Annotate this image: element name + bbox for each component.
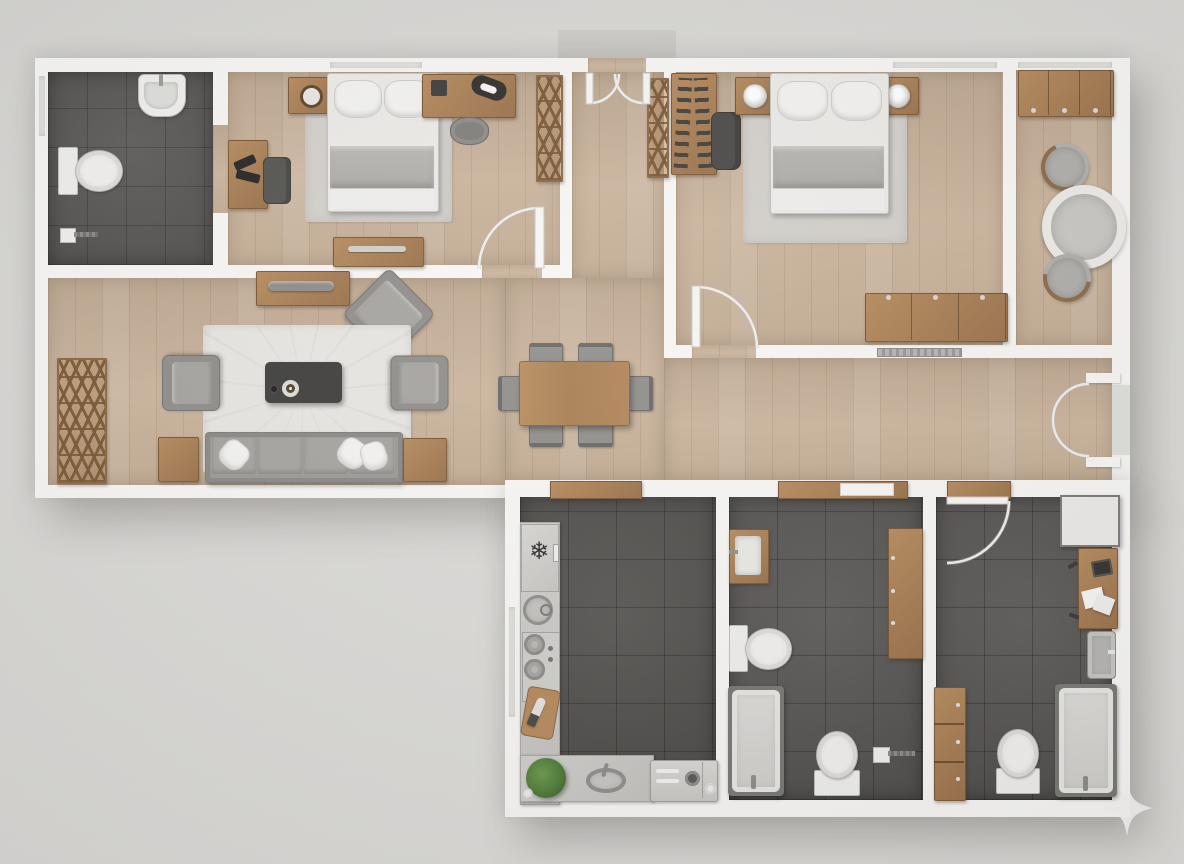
bed-footboard xyxy=(330,188,434,209)
dining-table xyxy=(519,361,630,426)
plant-bowl-kitchen xyxy=(522,788,533,799)
threshold-utility xyxy=(947,481,1011,499)
sideboard-knob1 xyxy=(1031,108,1036,113)
armchair-left-living xyxy=(162,355,220,411)
cooktop-knob1 xyxy=(548,646,553,651)
toilet-brush-handle-bathroom2 xyxy=(888,751,915,756)
bed-bedroom2 xyxy=(770,73,889,214)
vanity-basin-bathroom2 xyxy=(735,536,761,575)
cooktop-knob2 xyxy=(548,657,553,662)
sideboard-knob2 xyxy=(1062,108,1067,113)
laptop-utility xyxy=(1091,558,1113,577)
zigzag-shelf-living xyxy=(57,358,107,484)
oven-vent1 xyxy=(656,769,679,773)
dresser-knob1-bedroom2 xyxy=(886,295,891,300)
balcony-door-jamb-top xyxy=(1086,373,1120,383)
bathtub-bathroom2 xyxy=(728,686,784,796)
drawer-knob3-utility xyxy=(956,777,960,781)
drawer-knob2-utility xyxy=(956,740,960,744)
plate-small-living xyxy=(269,384,279,394)
sofa-living xyxy=(205,432,403,483)
coffee-table-living xyxy=(265,362,342,403)
fridge-snowflake-icon: ❄ xyxy=(526,538,552,564)
bed-footboard xyxy=(773,188,884,210)
soundbar-living xyxy=(268,281,334,291)
radiator-corridor xyxy=(877,348,962,357)
oven-small-dial xyxy=(705,783,716,794)
dresser-handle-bedroom1 xyxy=(348,246,406,252)
dresser-bedroom1 xyxy=(333,237,424,267)
doorway-bathroom1 xyxy=(213,125,228,213)
sideboard-knob3 xyxy=(1093,108,1098,113)
corridor-floor xyxy=(664,358,1112,480)
sink-basin-bathroom1 xyxy=(144,82,178,109)
sink-tap-utility xyxy=(1108,650,1115,654)
plate-large-living xyxy=(282,380,299,397)
oven-vent2 xyxy=(656,779,679,783)
cabinet-knob1-bathroom2 xyxy=(891,556,895,560)
lamp-left-bedroom2 xyxy=(743,84,767,108)
toilet2-bowl-bathroom2 xyxy=(816,731,858,779)
dresser-seams-bedroom2 xyxy=(865,293,1006,340)
threshold-kitchen xyxy=(550,481,642,499)
window-bathroom1 xyxy=(37,76,47,136)
cup-bedroom1 xyxy=(300,85,323,108)
oven-knob xyxy=(685,771,700,786)
cabinet-knob3-bathroom2 xyxy=(891,621,895,625)
doorway-bedroom1 xyxy=(482,265,542,278)
window-sitting-nook xyxy=(1018,60,1112,70)
toilet-brush-handle-bathroom1 xyxy=(74,232,98,237)
laptop-bedroom1 xyxy=(431,80,447,96)
window-bedroom2 xyxy=(893,60,997,70)
bathtub-faucet-bathroom2 xyxy=(751,775,756,789)
desk-chair-bedroom1 xyxy=(263,157,291,204)
stool-bedroom1 xyxy=(450,117,489,145)
oven-divider xyxy=(702,762,703,798)
cabinet-knob2-bathroom2 xyxy=(891,589,895,593)
balcony-door-jamb-bottom xyxy=(1086,457,1120,467)
side-table-right-living xyxy=(403,438,447,482)
sink-tap-bathroom1 xyxy=(159,74,163,86)
side-table-left-living xyxy=(158,437,199,482)
round-basin-drain xyxy=(540,604,552,616)
shoe-cabinet-hall xyxy=(647,78,669,178)
burner-1 xyxy=(524,634,545,655)
tall-cabinet-bathroom2 xyxy=(888,528,923,659)
desk-chair-bedroom2 xyxy=(711,112,741,170)
armchair-right-living xyxy=(391,356,449,411)
balcony-door-glass xyxy=(1112,383,1130,457)
window-bedroom1 xyxy=(330,60,422,70)
sliding-panel-bathroom2 xyxy=(840,483,894,496)
dining-chair-right xyxy=(628,376,653,411)
lamp-right-bedroom2 xyxy=(886,84,910,108)
vanity-tap-bathroom2 xyxy=(729,550,738,554)
toilet-bowl-bathroom1 xyxy=(75,150,123,192)
floor-plan-canvas: ❄ xyxy=(0,0,1184,864)
ladder-shelf-bedroom1 xyxy=(536,75,563,182)
window-kitchen xyxy=(507,607,517,717)
sofa-cushion xyxy=(258,438,302,474)
toilet-bowl-utility xyxy=(997,729,1039,778)
dresser-knob2-bedroom2 xyxy=(933,295,938,300)
doorway-entry xyxy=(588,58,646,72)
bathtub-faucet-utility xyxy=(1083,776,1088,791)
wall-sink-utility xyxy=(1087,631,1116,679)
white-cabinet-utility xyxy=(1060,495,1120,547)
burner-2 xyxy=(524,659,545,680)
doorway-bedroom2 xyxy=(692,345,756,358)
dresser-knob3-bedroom2 xyxy=(980,295,985,300)
toilet1-bowl-bathroom2 xyxy=(745,628,792,670)
fridge-handle xyxy=(553,544,559,562)
drawer-knob1-utility xyxy=(956,703,960,707)
